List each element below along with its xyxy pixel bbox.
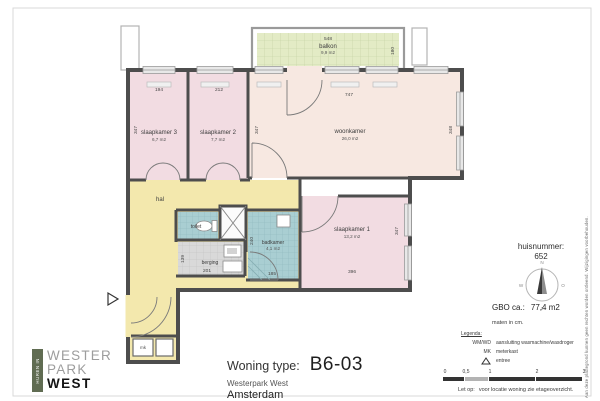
toilet-cistern [212,221,217,232]
badkamer-area: 4,1 m2 [266,246,280,251]
legend-wmwd-key: WM/WD [461,340,491,346]
slaapkamer2-label: slaapkamer 2 [200,130,237,136]
woning-type-label: Woning type: [227,359,300,373]
legend-wmwd-value: aansluiting wasmachine/wasdroger [496,340,593,346]
note-label: Let op: [458,387,475,393]
huisnummer-value: 652 [495,252,587,262]
meterkast: mk [133,339,173,356]
project-name: Westerpark West [227,379,363,388]
berging-label: berging [202,260,219,266]
washbasin [277,215,290,227]
balkon-width-dim: 548 [324,36,332,42]
legend-row-mk: MK meterkast [461,349,593,355]
legend-mk-value: meterkast [496,349,593,355]
slaapkamer1-label: slaapkamer 1 [334,227,371,233]
compass-w: W [519,283,524,288]
entree-marker-icon [108,293,118,305]
legend-mk-key: MK [461,349,491,355]
compass-e: O [561,283,565,288]
legend-title: Legenda: [461,331,593,337]
hal-label: hal [156,197,164,203]
gbo-value: 77,4 m2 [531,303,560,312]
mk-label: mk [140,345,147,350]
svg-text:347: 347 [133,126,139,134]
slaapkamer3-area: 6,7 m2 [152,137,166,142]
scale-tick: 0,5 [463,369,470,375]
svg-text:212: 212 [215,87,223,93]
huisnummer-label: huisnummer: [495,242,587,252]
room-woonkamer [248,72,460,178]
city-name: Amsterdam [227,389,363,401]
compass-needle-dark [537,267,542,294]
title-block: Woning type: B6-03 Westerpark West Amste… [227,354,363,401]
gbo-block: GBO ca.:77,4 m2 [492,303,560,312]
shaft [220,206,246,240]
svg-text:201: 201 [203,268,211,274]
note-value: voor locatie woning zie etageoverzicht. [479,387,573,393]
logo-line2: PARK [47,363,112,377]
compass-needle-light [542,267,547,294]
svg-text:139: 139 [180,255,186,263]
scale-tick: 0 [444,369,447,375]
legend-row-entree: entree [461,357,593,365]
scale-bar-segments [443,377,586,381]
disclaimer-text: Aan deze plattegrond kunnen geen rechten… [584,208,589,398]
balkon-area: 9,9 m2 [321,50,335,55]
svg-text:348: 348 [448,126,454,134]
room-slaapkamer1 [300,196,408,290]
entree-triangle-icon [461,357,491,365]
svg-text:185: 185 [268,271,276,277]
svg-text:347: 347 [254,126,260,134]
svg-text:347: 347 [394,227,400,235]
svg-text:747: 747 [345,92,353,98]
svg-text:396: 396 [348,269,356,275]
westerpark-west-logo: HUREN IN WESTER PARK WEST [32,349,112,392]
scale-bar: 0 0,5 1 2 3 [443,369,586,385]
huisnummer-block: huisnummer: 652 [495,242,587,262]
scale-tick: 1 [489,369,492,375]
logo-line1: WESTER [47,349,112,363]
gbo-label: GBO ca.: [492,303,525,312]
toilet-label: toilet [191,224,202,230]
slaapkamer1-area: 13,2 m2 [344,234,361,239]
dryer [223,261,242,272]
logo-green-bar: HUREN IN [32,349,43,392]
location-note: Let op:voor locatie woning zie etageover… [458,387,577,393]
svg-text:240: 240 [249,237,255,245]
legend-row-wmwd: WM/WD aansluiting wasmachine/wasdroger [461,340,593,346]
units-note: maten in cm. [492,320,523,326]
woonkamer-area: 26,0 m2 [342,136,359,141]
legend: Legenda: WM/WD aansluiting wasmachine/wa… [461,331,593,368]
svg-text:194: 194 [155,87,163,93]
logo-line3: WEST [47,377,112,391]
scale-tick: 2 [536,369,539,375]
slaapkamer3-label: slaapkamer 3 [141,130,178,136]
woning-type-value: B6-03 [310,354,363,376]
logo-tagline: HUREN IN [35,358,40,384]
balkon-depth-dim: 180 [390,47,396,55]
legend-entree-value: entree [496,358,593,364]
woonkamer-label: woonkamer [333,129,365,135]
room-balkon: 548 balkon 9,9 m2 180 [252,28,404,69]
slaapkamer2-area: 7,7 m2 [211,137,225,142]
